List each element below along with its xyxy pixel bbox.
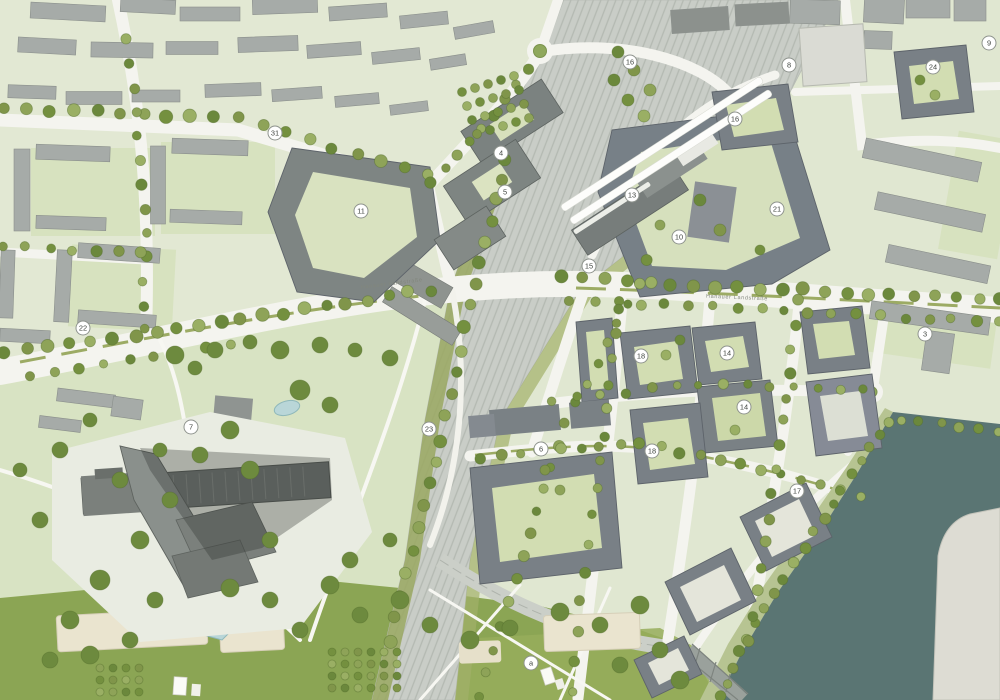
masterplan-map: Hanauer LandstraßeHanauer Landstraße3111… [0, 0, 1000, 700]
tree-icon [862, 289, 875, 302]
tree-icon [591, 297, 601, 307]
tree-icon [602, 403, 612, 413]
tree-icon [426, 286, 437, 297]
map-marker-14: 14 [720, 346, 734, 360]
tree-icon [112, 472, 128, 488]
tree-icon [99, 360, 107, 368]
tree-icon [391, 591, 409, 609]
tree-icon [694, 381, 701, 388]
tree-icon [322, 300, 332, 310]
tree-icon [153, 443, 167, 457]
tree-icon [772, 465, 781, 474]
tree-icon [925, 315, 935, 325]
tree-icon [593, 484, 602, 493]
tree-icon [486, 126, 495, 135]
tree-icon [109, 664, 117, 672]
tree-icon [207, 342, 223, 358]
tree-icon [913, 416, 922, 425]
tree-icon [743, 635, 754, 646]
tree-icon [608, 74, 620, 86]
tree-icon [121, 34, 131, 44]
map-marker-17: 17 [790, 484, 804, 498]
tree-icon [20, 103, 32, 115]
map-marker-11: 11 [354, 204, 368, 218]
marker-number: 17 [793, 487, 801, 496]
tree-icon [836, 385, 845, 394]
tree-icon [802, 308, 813, 319]
tree-icon [354, 648, 362, 656]
tree-icon [759, 603, 769, 613]
tree-icon [271, 341, 289, 359]
tree-icon [883, 288, 895, 300]
tree-icon [64, 337, 75, 348]
tree-icon [622, 94, 634, 106]
map-marker-8: 8 [782, 58, 796, 72]
tree-icon [774, 439, 785, 450]
tree-icon [611, 328, 622, 339]
tree-icon [715, 691, 726, 700]
tree-icon [298, 302, 311, 315]
tree-icon [652, 642, 668, 658]
tree-icon [709, 281, 722, 294]
marker-number: 7 [189, 423, 193, 432]
tree-icon [525, 528, 536, 539]
tree-icon [569, 688, 577, 696]
marker-number: 22 [79, 324, 87, 333]
tree-icon [226, 340, 235, 349]
marker-number: 16 [626, 58, 634, 67]
tree-icon [22, 343, 34, 355]
tree-icon [577, 272, 588, 283]
tree-icon [192, 447, 208, 463]
tree-icon [132, 131, 141, 140]
tree-icon [758, 303, 768, 313]
tree-icon [348, 343, 362, 357]
tree-icon [616, 440, 626, 450]
tree-icon [188, 361, 202, 375]
tree-icon [475, 454, 486, 465]
map-marker-21: 21 [770, 202, 784, 216]
tree-icon [424, 477, 436, 489]
tree-icon [131, 531, 149, 549]
map-marker-10: 10 [672, 230, 686, 244]
tree-icon [166, 346, 184, 364]
tree-icon [465, 299, 476, 310]
marker-number: 24 [929, 63, 937, 72]
tree-icon [764, 514, 775, 525]
tree-icon [47, 244, 56, 253]
tree-icon [636, 300, 646, 310]
tree-icon [556, 443, 567, 454]
tree-icon [733, 303, 743, 313]
tree-icon [791, 320, 802, 331]
map-marker-22: 22 [76, 321, 90, 335]
tree-icon [714, 224, 726, 236]
tree-icon [138, 277, 147, 286]
tree-icon [241, 461, 259, 479]
tree-icon [262, 532, 278, 548]
tree-icon [842, 287, 854, 299]
tree-icon [723, 680, 732, 689]
tree-icon [380, 660, 388, 668]
tree-icon [675, 335, 685, 345]
tree-icon [857, 492, 866, 501]
tree-icon [851, 308, 862, 319]
tree-icon [135, 676, 143, 684]
map-marker-31: 31 [268, 126, 282, 140]
tree-icon [135, 688, 143, 696]
tree-icon [515, 86, 524, 95]
tree-icon [67, 104, 80, 117]
tree-icon [647, 382, 657, 392]
tree-icon [476, 98, 485, 107]
map-marker-5: 5 [498, 185, 512, 199]
tree-icon [367, 684, 375, 692]
tree-icon [384, 635, 397, 648]
tree-icon [621, 389, 631, 399]
marker-number: 3 [923, 330, 927, 339]
tree-icon [352, 607, 368, 623]
tree-icon [644, 84, 656, 96]
tree-icon [312, 337, 328, 353]
tree-icon [473, 130, 482, 139]
tree-icon [696, 450, 706, 460]
tree-icon [661, 350, 671, 360]
tree-icon [457, 320, 470, 333]
tree-icon [564, 296, 573, 305]
tree-icon [159, 110, 173, 124]
tree-icon [612, 319, 621, 328]
tree-icon [778, 575, 788, 585]
tree-icon [875, 430, 885, 440]
tree-icon [779, 415, 789, 425]
tree-icon [96, 664, 104, 672]
tree-icon [126, 355, 136, 365]
tree-icon [573, 626, 584, 637]
tree-icon [139, 302, 149, 312]
tree-icon [929, 290, 940, 301]
tree-icon [820, 513, 831, 524]
marker-number: 11 [357, 207, 365, 216]
tree-icon [596, 456, 605, 465]
tree-icon [573, 392, 582, 401]
tree-icon [502, 620, 518, 636]
tree-icon [471, 84, 480, 93]
tree-icon [292, 622, 308, 638]
tree-icon [847, 469, 857, 479]
tree-icon [458, 88, 467, 97]
tree-icon [994, 428, 1000, 436]
tree-icon [971, 315, 982, 326]
tree-icon [367, 660, 375, 668]
marker-number: 16 [731, 115, 739, 124]
tree-icon [328, 660, 336, 668]
tree-icon [243, 335, 257, 349]
tree-icon [588, 510, 597, 519]
map-marker-7: 7 [184, 420, 198, 434]
marker-number: 14 [740, 403, 748, 412]
tree-icon [574, 596, 584, 606]
tree-icon [782, 394, 791, 403]
tree-icon [497, 76, 506, 85]
marker-number: 15 [585, 262, 593, 271]
tree-icon [641, 254, 652, 265]
tree-icon [73, 363, 84, 374]
tree-icon [367, 648, 375, 656]
tree-icon [569, 656, 580, 667]
tree-icon [136, 179, 147, 190]
tree-icon [171, 322, 183, 334]
tree-icon [671, 671, 689, 689]
map-marker-15: 15 [582, 259, 596, 273]
marker-number: 23 [425, 425, 433, 434]
tree-icon [13, 463, 27, 477]
tree-icon [96, 676, 104, 684]
tree-icon [819, 286, 831, 298]
tree-icon [162, 492, 178, 508]
tree-icon [322, 397, 338, 413]
map-marker-18: 18 [645, 444, 659, 458]
tree-icon [510, 72, 519, 81]
tree-icon [362, 296, 373, 307]
tree-icon [909, 291, 920, 302]
tree-icon [687, 280, 700, 293]
map-marker-23: 23 [422, 422, 436, 436]
map-marker-13: 13 [625, 188, 639, 202]
tree-icon [221, 421, 239, 439]
tree-icon [475, 692, 484, 700]
tree-icon [85, 336, 96, 347]
tree-icon [0, 103, 9, 114]
tree-icon [599, 272, 611, 284]
tree-icon [532, 507, 541, 516]
tree-icon [132, 108, 141, 117]
tree-icon [594, 359, 603, 368]
tree-icon [354, 672, 362, 680]
tree-icon [733, 645, 744, 656]
tree-icon [215, 315, 228, 328]
tree-icon [539, 484, 548, 493]
tree-icon [507, 104, 516, 113]
tree-icon [655, 220, 665, 230]
tree-icon [290, 380, 310, 400]
tree-icon [0, 346, 10, 358]
tree-icon [393, 648, 401, 656]
tree-icon [735, 458, 746, 469]
tree-icon [951, 292, 961, 302]
tree-icon [384, 290, 395, 301]
tree-icon [114, 108, 125, 119]
tree-icon [447, 388, 458, 399]
tree-icon [135, 155, 145, 165]
tree-icon [608, 354, 617, 363]
tree-icon [277, 308, 289, 320]
tree-icon [645, 277, 657, 289]
map-marker-9: 9 [982, 36, 996, 50]
tree-icon [151, 326, 163, 338]
tree-icon [484, 80, 493, 89]
tree-icon [393, 660, 401, 668]
tree-icon [91, 245, 103, 257]
tree-icon [659, 299, 669, 309]
tree-icon [465, 137, 474, 146]
tree-icon [140, 204, 151, 215]
tree-icon [41, 339, 54, 352]
tree-icon [780, 306, 789, 315]
tree-icon [207, 111, 219, 123]
tree-icon [859, 385, 868, 394]
tree-icon [816, 480, 826, 490]
tree-icon [766, 488, 776, 498]
tree-icon [422, 617, 438, 633]
tree-icon [140, 324, 149, 333]
map-marker-18: 18 [634, 349, 648, 363]
tree-icon [788, 557, 799, 568]
tree-icon [744, 380, 752, 388]
map-marker-24: 24 [926, 60, 940, 74]
tree-icon [559, 418, 569, 428]
tree-icon [439, 410, 451, 422]
tree-icon [673, 381, 681, 389]
site-plan-canvas: Hanauer LandstraßeHanauer Landstraße3111… [0, 0, 1000, 700]
tree-icon [341, 648, 349, 656]
tree-icon [354, 660, 362, 668]
tree-icon [374, 155, 387, 168]
marker-number: 13 [628, 191, 636, 200]
tree-icon [81, 646, 99, 664]
tree-icon [92, 104, 104, 116]
tree-icon [122, 676, 130, 684]
tree-icon [624, 300, 632, 308]
tree-icon [797, 476, 806, 485]
tree-icon [193, 319, 206, 332]
tree-icon [122, 664, 130, 672]
tree-icon [105, 332, 118, 345]
tree-icon [382, 350, 398, 366]
tree-icon [233, 112, 244, 123]
tree-icon [592, 617, 608, 633]
tree-icon [540, 465, 550, 475]
tree-icon [730, 425, 740, 435]
tree-icon [470, 278, 482, 290]
marker-number: 14 [723, 349, 731, 358]
tree-icon [875, 310, 885, 320]
map-marker-a: a [524, 656, 538, 670]
tree-icon [90, 570, 110, 590]
tree-icon [130, 84, 140, 94]
tree-icon [708, 301, 717, 310]
tree-icon [388, 611, 400, 623]
tree-icon [638, 110, 650, 122]
tree-icon [512, 573, 523, 584]
tree-icon [221, 579, 239, 597]
tree-icon [367, 672, 375, 680]
tree-icon [583, 380, 591, 388]
tree-icon [785, 368, 796, 379]
marker-number: 10 [675, 233, 683, 242]
tree-icon [938, 419, 946, 427]
tree-icon [383, 533, 397, 547]
tree-icon [499, 122, 508, 131]
tree-icon [147, 592, 163, 608]
tree-icon [683, 301, 693, 311]
tree-icon [489, 646, 498, 655]
tree-icon [760, 536, 771, 547]
tree-icon [755, 245, 765, 255]
tree-icon [614, 304, 624, 314]
tree-icon [461, 631, 479, 649]
tree-icon [897, 416, 905, 424]
tree-icon [884, 417, 894, 427]
marker-number: 6 [539, 445, 543, 454]
tree-icon [718, 379, 728, 389]
tree-icon [555, 485, 565, 495]
tree-icon [864, 442, 874, 452]
tree-icon [580, 567, 591, 578]
marker-number: 21 [773, 205, 781, 214]
tree-icon [463, 102, 472, 111]
tree-icon [258, 119, 269, 130]
marker-number: 9 [987, 39, 991, 48]
tree-icon [664, 279, 677, 292]
tree-icon [124, 59, 134, 69]
tree-icon [393, 684, 401, 692]
tree-icon [425, 177, 437, 189]
tree-icon [555, 270, 568, 283]
tree-icon [603, 338, 612, 347]
tree-icon [752, 585, 763, 596]
tree-icon [353, 149, 364, 160]
tree-icon [83, 413, 97, 427]
tree-icon [796, 282, 810, 296]
tree-icon [600, 432, 610, 442]
tree-icon [621, 275, 633, 287]
tree-icon [673, 448, 685, 460]
tree-icon [418, 499, 430, 511]
tree-icon [328, 648, 336, 656]
tree-icon [496, 449, 507, 460]
tree-icon [256, 308, 270, 322]
tree-icon [452, 150, 463, 161]
tree-icon [149, 352, 159, 362]
tree-icon [393, 672, 401, 680]
tree-icon [122, 688, 130, 696]
tree-icon [122, 632, 138, 648]
tree-icon [829, 500, 838, 509]
tree-icon [975, 294, 986, 305]
tree-icon [785, 345, 794, 354]
tree-icon [954, 422, 964, 432]
tree-icon [584, 540, 593, 549]
tree-icon [594, 442, 603, 451]
tree-icon [503, 596, 514, 607]
marker-number: 4 [499, 149, 503, 158]
tree-icon [551, 603, 569, 621]
tree-icon [754, 283, 766, 295]
tree-icon [496, 174, 507, 185]
tree-icon [612, 657, 628, 673]
tree-icon [994, 317, 1000, 326]
tree-icon [67, 246, 76, 255]
tree-icon [520, 100, 529, 109]
tree-icon [472, 256, 485, 269]
tree-icon [694, 194, 706, 206]
tree-icon [826, 309, 835, 318]
tree-icon [341, 684, 349, 692]
tree-icon [481, 668, 490, 677]
tree-icon [401, 285, 413, 297]
tree-icon [547, 397, 556, 406]
